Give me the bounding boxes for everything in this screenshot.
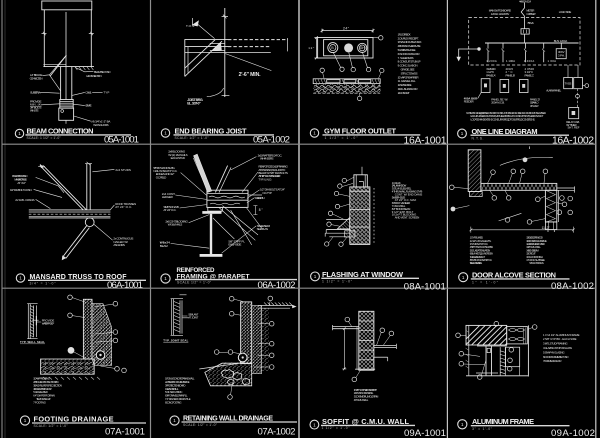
svg-text:TYP. WALL SEAL: TYP. WALL SEAL xyxy=(20,340,45,344)
svg-text:3" = 1'-0": 3" = 1'-0" xyxy=(472,427,493,431)
svg-text:O.C. FIELD: O.C. FIELD xyxy=(156,175,167,179)
svg-text:SCALE: 1/2" = 1'-0": SCALE: 1/2" = 1'-0" xyxy=(183,423,218,427)
svg-text:06A-1001: 06A-1001 xyxy=(107,280,143,291)
svg-text:4 8" CMU WALL: 4 8" CMU WALL xyxy=(354,398,369,402)
svg-text:1 1/2" = 1'-0": 1 1/2" = 1'-0" xyxy=(325,136,359,140)
svg-text:LEDGER: LEDGER xyxy=(162,195,174,199)
svg-text:1: 1 xyxy=(164,131,167,136)
svg-text:3 BACKFILL PER SPEC. SECTION: 3 BACKFILL PER SPEC. SECTION xyxy=(33,383,62,387)
svg-text:FULL DEPTH: FULL DEPTH xyxy=(255,196,265,200)
svg-text:L4 CONNECTION: L4 CONNECTION xyxy=(86,74,102,78)
svg-text:PANEL'A': PANEL'A' xyxy=(486,73,496,77)
svg-text:1: 1 xyxy=(313,131,316,136)
svg-text:75KVA: 75KVA xyxy=(527,21,534,25)
svg-text:SCALE: 1 1/2" = 1'-0": SCALE: 1 1/2" = 1'-0" xyxy=(27,136,62,140)
svg-text:11'-2": 11'-2" xyxy=(542,226,550,230)
svg-text:ONE LINE DIAGRAM: ONE LINE DIAGRAM xyxy=(472,127,538,136)
svg-text:1 1/2" = 1'-0": 1 1/2" = 1'-0" xyxy=(322,280,353,284)
svg-text:3/4" = 1'-0": 3/4" = 1'-0" xyxy=(30,281,57,285)
svg-text:SCALE: 1/2" = 1'-0": SCALE: 1/2" = 1'-0" xyxy=(175,136,210,140)
svg-text:EACH SIDE: EACH SIDE xyxy=(228,243,241,247)
svg-text:PANEL'C': PANEL'C' xyxy=(525,73,535,77)
svg-text:1: 1 xyxy=(24,418,27,423)
svg-text:6 4" DIA PERF. DRAIN: 6 4" DIA PERF. DRAIN xyxy=(33,394,55,398)
svg-text:7 4" DIA PERF. DRAIN TILE: 7 4" DIA PERF. DRAIN TILE xyxy=(165,397,191,401)
svg-text:LOCATION AND EXTEND CONDUIT AS: LOCATION AND EXTEND CONDUIT AS REQ'D TO … xyxy=(471,117,536,121)
svg-text:16A-1002: 16A-1002 xyxy=(552,136,594,147)
svg-text:CONNECTION: CONNECTION xyxy=(30,76,43,80)
svg-text:CABINET: CABINET xyxy=(526,12,536,16)
svg-text:WATERPROOF: WATERPROOF xyxy=(42,322,55,326)
svg-text:TYP. JOINT SEAL: TYP. JOINT SEAL xyxy=(163,338,188,342)
svg-text:5 GRAVEL BED: 5 GRAVEL BED xyxy=(33,390,48,394)
svg-text:W/ ANCHORS: W/ ANCHORS xyxy=(93,123,109,127)
svg-text:AT 24" O.C.: AT 24" O.C. xyxy=(163,208,176,212)
svg-text:7 FRAME ANCHOR: 7 FRAME ANCHOR xyxy=(543,359,562,363)
svg-text:7 FOOTING: 7 FOOTING xyxy=(33,400,46,404)
svg-text:1" = 1'-0": 1" = 1'-0" xyxy=(472,280,499,284)
svg-text:T.O.S.: T.O.S. xyxy=(186,24,195,28)
svg-text:AT 4'-0": AT 4'-0" xyxy=(17,181,26,185)
svg-text:16A-1001: 16A-1001 xyxy=(404,136,447,147)
svg-text:2x4 STUDS: 2x4 STUDS xyxy=(115,168,130,172)
svg-text:GUSSET PLA: GUSSET PLA xyxy=(30,91,41,95)
svg-text:1: 1 xyxy=(462,275,465,280)
svg-text:8": 8" xyxy=(259,208,263,212)
svg-text:4 GLAZING STOP W/ GLASS: 4 GLAZING STOP W/ GLASS xyxy=(543,346,572,350)
svg-text:1200A 120/208V: 1200A 120/208V xyxy=(491,12,510,16)
svg-text:AND VENT. SCREEN: AND VENT. SCREEN xyxy=(395,216,420,220)
svg-text:2 WATERPROOF MEMBRANE: 2 WATERPROOF MEMBRANE xyxy=(165,380,190,384)
svg-text:BUS 1200A: BUS 1200A xyxy=(554,39,568,43)
svg-text:TVSS: TVSS xyxy=(565,81,572,85)
svg-text:1 DAMPPROOFING: 1 DAMPPROOFING xyxy=(33,377,50,381)
svg-text:5 SNAP-IN GLAZING: 5 SNAP-IN GLAZING xyxy=(543,350,565,354)
svg-text:C PLATE: C PLATE xyxy=(85,104,92,108)
svg-text:3 PROTECTION BOARD: 3 PROTECTION BOARD xyxy=(165,383,186,387)
svg-text:END BEARING JOIST: END BEARING JOIST xyxy=(175,127,247,136)
svg-text:05A-1002: 05A-1002 xyxy=(253,134,290,145)
svg-text:O.C. TYP: O.C. TYP xyxy=(262,191,272,195)
svg-text:EL. 100'-0": EL. 100'-0" xyxy=(187,102,201,106)
svg-text:3 MTL STUD FRAMING: 3 MTL STUD FRAMING xyxy=(543,342,568,346)
svg-text:W/ 16d NAILS: W/ 16d NAILS xyxy=(168,223,183,227)
svg-text:1 1"x4 1/2" ALUMINUM FRAME: 1 1"x4 1/2" ALUMINUM FRAME xyxy=(543,333,580,337)
svg-text:08A-1001: 08A-1001 xyxy=(404,281,446,292)
svg-text:STRUCT. DWGS.: STRUCT. DWGS. xyxy=(529,261,544,265)
svg-text:ALUMINUM FRAME: ALUMINUM FRAME xyxy=(472,417,534,426)
svg-text:4 FILTER FABRIC WRAP: 4 FILTER FABRIC WRAP xyxy=(33,387,52,391)
svg-text:1 1/2" = 1'-0": 1 1/2" = 1'-0" xyxy=(322,426,351,430)
svg-text:DOOR ALCOVE SECTION: DOOR ALCOVE SECTION xyxy=(472,271,556,280)
svg-text:07A-1002: 07A-1002 xyxy=(258,427,296,438)
svg-text:4 BACKFILL: 4 BACKFILL xyxy=(165,387,179,391)
svg-text:1: 1 xyxy=(18,131,21,136)
svg-text:FOOTING DRAINAGE: FOOTING DRAINAGE xyxy=(34,415,114,424)
svg-text:08A-1002: 08A-1002 xyxy=(551,281,594,292)
svg-text:24": 24" xyxy=(343,26,350,30)
svg-text:9 SEALANT EA. SIDE: 9 SEALANT EA. SIDE xyxy=(470,261,483,265)
svg-text:09A-1002: 09A-1002 xyxy=(551,428,595,438)
svg-text:5 FILTER FABRIC: 5 FILTER FABRIC xyxy=(165,390,183,394)
svg-text:2 BITUMEN PROTECTION BD.: 2 BITUMEN PROTECTION BD. xyxy=(33,380,59,384)
svg-text:1 100A: 1 100A xyxy=(506,59,515,63)
svg-text:PANEL'B': PANEL'B' xyxy=(506,73,516,77)
svg-text:FEEDER: FEEDER xyxy=(464,100,474,104)
svg-text:4#500 MCM: 4#500 MCM xyxy=(519,0,532,4)
svg-text:GH: GH xyxy=(360,46,366,50)
svg-text:3 PH.: 3 PH. xyxy=(558,54,565,58)
svg-text:1: 1 xyxy=(313,422,316,427)
svg-text:12": 12" xyxy=(308,46,314,50)
svg-text:6 3/4" GRAVEL DRAIN FILL: 6 3/4" GRAVEL DRAIN FILL xyxy=(165,394,188,398)
svg-text:200A M.C.B.: 200A M.C.B. xyxy=(491,101,505,105)
svg-text:1: 1 xyxy=(461,422,464,427)
svg-text:SCALE: 1/2" = 1'-0": SCALE: 1/2" = 1'-0" xyxy=(34,424,69,428)
svg-text:ALARM PANEL: ALARM PANEL xyxy=(546,88,561,92)
svg-text:1/2" DIA BOLT CONN.: 1/2" DIA BOLT CONN. xyxy=(10,188,32,192)
svg-text:EACH STUD: EACH STUD xyxy=(171,156,186,160)
svg-text:1 60A: 1 60A xyxy=(548,59,557,63)
svg-text:SOFFIT @ C.M.U. WALL: SOFFIT @ C.M.U. WALL xyxy=(322,417,409,426)
svg-text:TYP: TYP xyxy=(103,90,109,94)
svg-text:3 PH 4W: 3 PH 4W xyxy=(530,104,539,108)
svg-text:SCALE 1/2" = 1'-0": SCALE 1/2" = 1'-0" xyxy=(177,281,212,285)
svg-text:6 DOOR FRAME BEYOND: 6 DOOR FRAME BEYOND xyxy=(543,355,569,359)
svg-text:1: 1 xyxy=(19,276,22,281)
svg-text:LOAD SIDE: LOAD SIDE xyxy=(559,10,572,14)
svg-text:SEE PLAN: SEE PLAN xyxy=(257,227,269,231)
svg-text:1 400A: 1 400A xyxy=(524,59,535,63)
svg-text:BEAM: BEAM xyxy=(160,244,169,248)
svg-text:2 5/8" GYP BD - EACH SIDE: 2 5/8" GYP BD - EACH SIDE xyxy=(543,337,577,341)
svg-text:06A-1002: 06A-1002 xyxy=(258,280,296,291)
svg-text:14. CONDUIT: 14. CONDUIT xyxy=(398,91,410,95)
svg-text:1 8" CMU / CONC. RETAINING WA: 1 8" CMU / CONC. RETAINING WALL xyxy=(165,377,195,381)
svg-text:1: 1 xyxy=(314,274,317,279)
svg-text:W/ NUTS: W/ NUTS xyxy=(30,109,39,113)
svg-text:TYP. U.N.O.: TYP. U.N.O. xyxy=(258,177,272,181)
svg-text:1 200A: 1 200A xyxy=(486,59,497,63)
svg-text:C 8x11: C 8x11 xyxy=(85,90,92,94)
svg-text:BEAM CONNECTION: BEAM CONNECTION xyxy=(27,127,94,136)
svg-text:1: 1 xyxy=(461,131,464,136)
svg-text:AT JOINT: AT JOINT xyxy=(188,316,198,320)
svg-text:07A-1001: 07A-1001 xyxy=(105,427,145,438)
svg-text:2'-6" MIN.: 2'-6" MIN. xyxy=(239,72,262,78)
svg-text:2x SUB - FASCIA: 2x SUB - FASCIA xyxy=(15,198,35,202)
svg-text:05A-1001: 05A-1001 xyxy=(104,134,139,145)
svg-text:AT 24" O.C.: AT 24" O.C. xyxy=(115,205,132,209)
svg-text:N.T.S.: N.T.S. xyxy=(472,136,484,140)
svg-text:SHT. REF: SHT. REF xyxy=(568,125,580,129)
svg-text:8 CONC. FOOTING: 8 CONC. FOOTING xyxy=(165,400,182,404)
svg-text:W/ HANGERS: W/ HANGERS xyxy=(260,157,274,161)
svg-text:09A-1001: 09A-1001 xyxy=(404,428,446,438)
svg-text:ANCHORS: ANCHORS xyxy=(113,243,125,247)
svg-text:1: 1 xyxy=(173,418,176,423)
svg-text:GYM FLOOR OUTLET: GYM FLOOR OUTLET xyxy=(324,127,396,136)
svg-text:TILE TO DAYLIGHT: TILE TO DAYLIGHT xyxy=(36,397,51,401)
svg-text:1: 1 xyxy=(164,276,167,281)
